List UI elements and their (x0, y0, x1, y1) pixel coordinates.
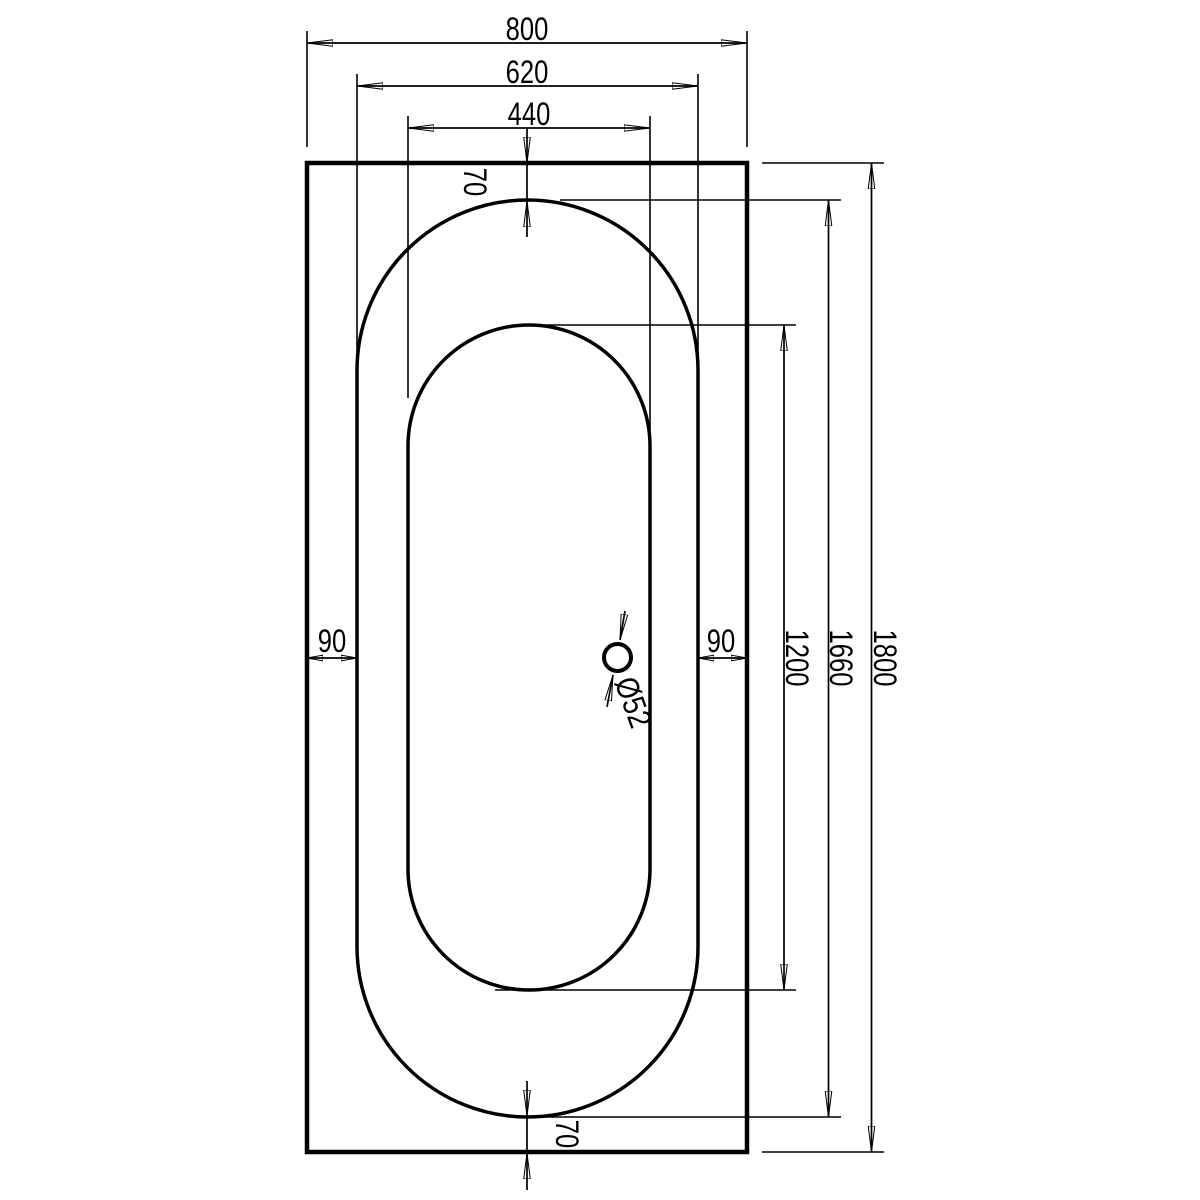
dim-rim-gap-left: 90 (307, 624, 357, 659)
bathtub-technical-drawing: 800 620 440 70 70 (0, 0, 1200, 1200)
drain-hole (604, 644, 631, 671)
dim-label-length-rim: 1660 (822, 630, 857, 687)
dim-label-width-basin: 440 (508, 97, 551, 132)
dim-label-rim-gap-right: 90 (707, 624, 735, 659)
dim-rim-gap-bottom: 70 (527, 1081, 584, 1190)
dim-rim-gap-right: 90 (698, 624, 747, 659)
dim-label-width-rim: 620 (506, 55, 549, 90)
drawing-canvas: 800 620 440 70 70 (0, 0, 1200, 1200)
dim-label-rim-gap-top: 70 (456, 168, 491, 196)
dim-length-basin: 1200 (495, 325, 814, 990)
dim-rim-gap-top: 70 (456, 128, 527, 237)
leader-arrow-upper (620, 611, 625, 640)
dim-width-basin: 440 (408, 97, 650, 446)
dim-label-length-overall: 1800 (866, 630, 901, 687)
dim-label-rim-gap-bottom: 70 (548, 1120, 583, 1148)
tub-basin-outline (408, 325, 650, 990)
dim-label-rim-gap-left: 90 (318, 624, 346, 659)
dim-label-length-basin: 1200 (778, 630, 813, 687)
dim-label-width-overall: 800 (506, 12, 549, 47)
tub-outer-outline (307, 163, 747, 1152)
tub-outlines (307, 163, 747, 1152)
